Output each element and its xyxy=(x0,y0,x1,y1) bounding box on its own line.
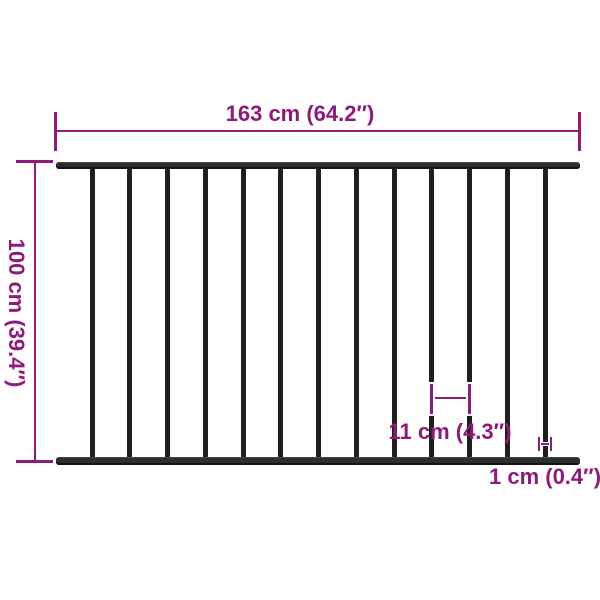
height-dimension-label: 100 cm (39.4″) xyxy=(3,239,29,388)
fence-bar xyxy=(505,168,510,458)
fence-bar xyxy=(165,168,170,458)
gap-dimension-tick-left xyxy=(428,382,435,416)
height-dimension-line xyxy=(34,162,36,462)
fence-bar xyxy=(316,168,321,458)
fence-bar xyxy=(543,168,548,458)
height-dimension-tick-top xyxy=(16,160,53,163)
fence-bar xyxy=(354,168,359,458)
bar-thickness-dimension-label: 1 cm (0.4″) xyxy=(489,464,600,490)
fence-bar xyxy=(203,168,208,458)
gap-dimension-label: 11 cm (4.3″) xyxy=(388,419,511,445)
gap-dimension-line xyxy=(435,397,466,399)
bar-thickness-line xyxy=(541,443,549,445)
fence-bar xyxy=(90,168,95,458)
top-rail xyxy=(56,162,580,169)
product-dimension-diagram: 163 cm (64.2″) 100 cm (39.4″) 11 cm (4.3… xyxy=(0,0,600,600)
fence-bar xyxy=(241,168,246,458)
height-dimension-tick-bottom xyxy=(16,460,53,463)
bar-thickness-tick-right xyxy=(549,436,553,452)
fence-bar xyxy=(278,168,283,458)
width-dimension-label: 163 cm (64.2″) xyxy=(0,101,600,127)
fence-bar xyxy=(392,168,397,458)
width-dimension-line xyxy=(56,130,580,132)
fence-bar xyxy=(127,168,132,458)
gap-dimension-tick-right xyxy=(466,382,473,416)
